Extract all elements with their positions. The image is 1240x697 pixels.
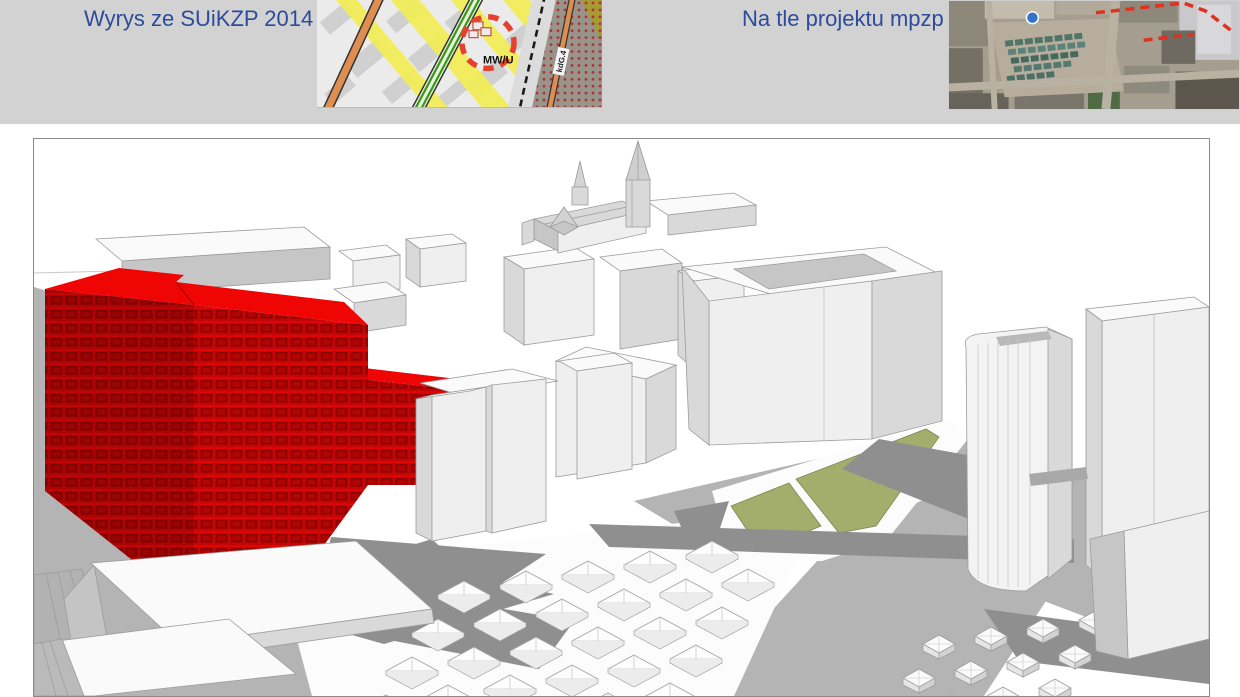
round-tower — [965, 327, 1072, 591]
photo-location-marker — [1026, 12, 1038, 24]
model-frame — [33, 138, 1210, 697]
perimeter-block — [682, 247, 942, 445]
map-zone-label: MW/U — [483, 54, 514, 66]
model-3d-view — [34, 139, 1209, 696]
aerial-photo-thumbnail — [948, 0, 1240, 110]
header-strip: Wyrys ze SUiKZP 2014 — [0, 0, 1240, 124]
caption-suikzp: Wyrys ze SUiKZP 2014 — [84, 6, 313, 32]
caption-mpzp: Na tle projektu mpzp — [742, 6, 944, 32]
suikzp-map-thumbnail: kdG.4 MW/U — [317, 0, 602, 108]
church-tower — [626, 179, 650, 227]
